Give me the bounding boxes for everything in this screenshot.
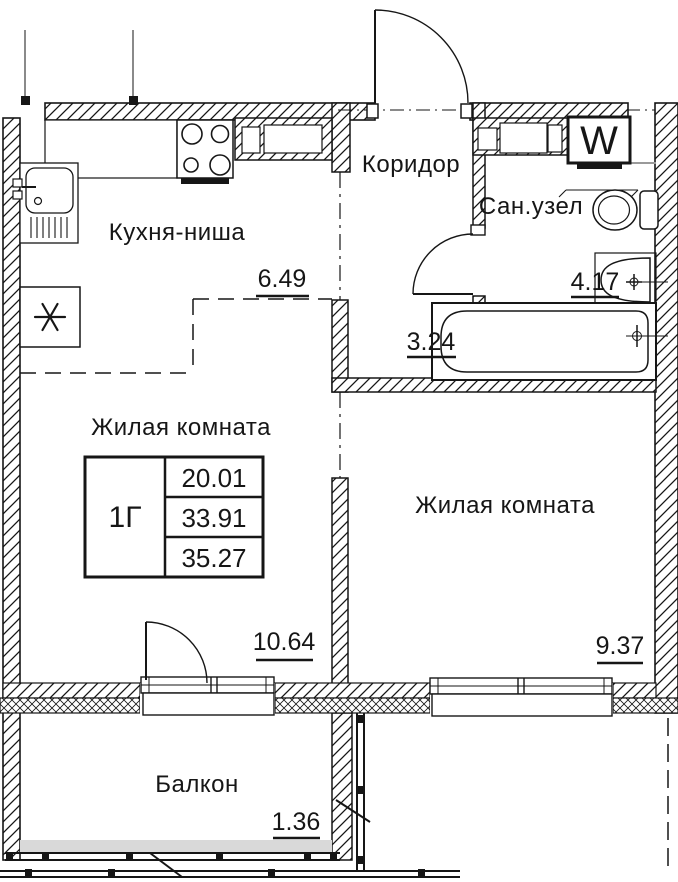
area-living-right: 9.37 bbox=[596, 632, 645, 660]
fridge-snowflake-icon bbox=[20, 287, 80, 347]
axis-pin-marker-2 bbox=[129, 96, 138, 105]
wall-balcony-right bbox=[332, 713, 352, 860]
area-balcony: 1.36 bbox=[272, 808, 321, 836]
label-kitchen: Кухня-ниша bbox=[109, 219, 246, 246]
area-corridor: 3.24 bbox=[407, 328, 456, 356]
wall-left-outer bbox=[3, 118, 20, 860]
wall-band-outer-3 bbox=[613, 698, 678, 713]
wall-band-inner-2 bbox=[275, 683, 430, 698]
kitchen-cabinet bbox=[235, 118, 332, 160]
bathroom-cabinet bbox=[473, 118, 570, 155]
label-living-left: Жилая комната bbox=[91, 414, 271, 441]
right-room-window bbox=[430, 678, 613, 716]
area-kitchen: 6.49 bbox=[258, 265, 307, 293]
washer-label: W bbox=[580, 119, 618, 163]
washer-front-strip bbox=[577, 163, 622, 169]
label-bathroom: Сан.узел bbox=[479, 193, 583, 220]
label-corridor: Коридор bbox=[362, 151, 460, 178]
floor-plan: W bbox=[0, 0, 678, 882]
wall-band-outer-1 bbox=[0, 698, 140, 713]
sink-icon bbox=[13, 163, 78, 243]
area-value-1: 20.01 bbox=[181, 463, 246, 493]
entrance-jamb-left bbox=[367, 104, 378, 118]
entrance-jamb-right bbox=[461, 104, 472, 118]
unit-type-label: 1Г bbox=[109, 501, 142, 534]
stove-icon bbox=[177, 120, 233, 184]
label-living-right: Жилая комната bbox=[415, 492, 595, 519]
apartment-info-table: 1Г 20.01 33.91 35.27 bbox=[85, 457, 263, 577]
area-bathroom: 4.17 bbox=[571, 268, 620, 296]
label-balcony: Балкон bbox=[155, 771, 238, 798]
right-window-sill bbox=[432, 694, 612, 716]
area-value-2: 33.91 bbox=[181, 503, 246, 533]
area-value-3: 35.27 bbox=[181, 543, 246, 573]
wall-stub-kitchen-corridor bbox=[332, 103, 350, 172]
area-living-left: 10.64 bbox=[253, 628, 316, 656]
balcony-floor-strip bbox=[20, 840, 332, 853]
balcony-window-sill bbox=[143, 693, 274, 715]
wall-rooms-divider bbox=[332, 478, 348, 692]
axis-pin-marker-1 bbox=[21, 96, 30, 105]
wall-band-inner-3 bbox=[613, 683, 656, 698]
bathtub-icon bbox=[432, 303, 668, 380]
bathroom-jamb bbox=[471, 225, 485, 235]
wall-band-inner-1 bbox=[3, 683, 140, 698]
wall-band-outer-2 bbox=[275, 698, 430, 713]
